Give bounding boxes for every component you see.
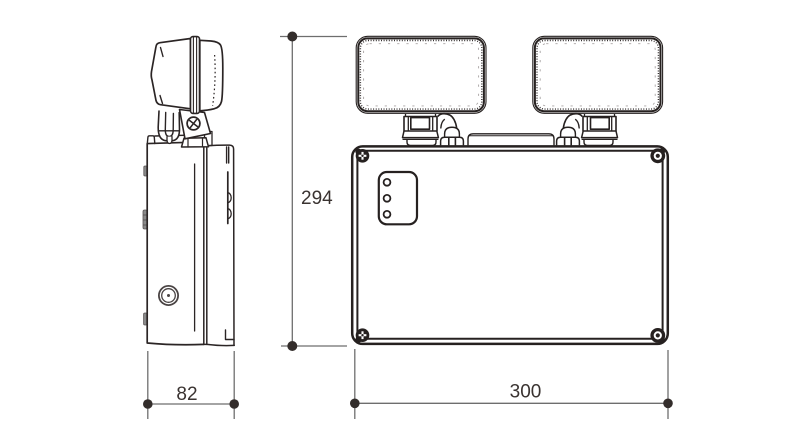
svg-text:294: 294 (301, 188, 333, 209)
svg-text:300: 300 (510, 382, 542, 403)
svg-text:82: 82 (176, 384, 197, 405)
